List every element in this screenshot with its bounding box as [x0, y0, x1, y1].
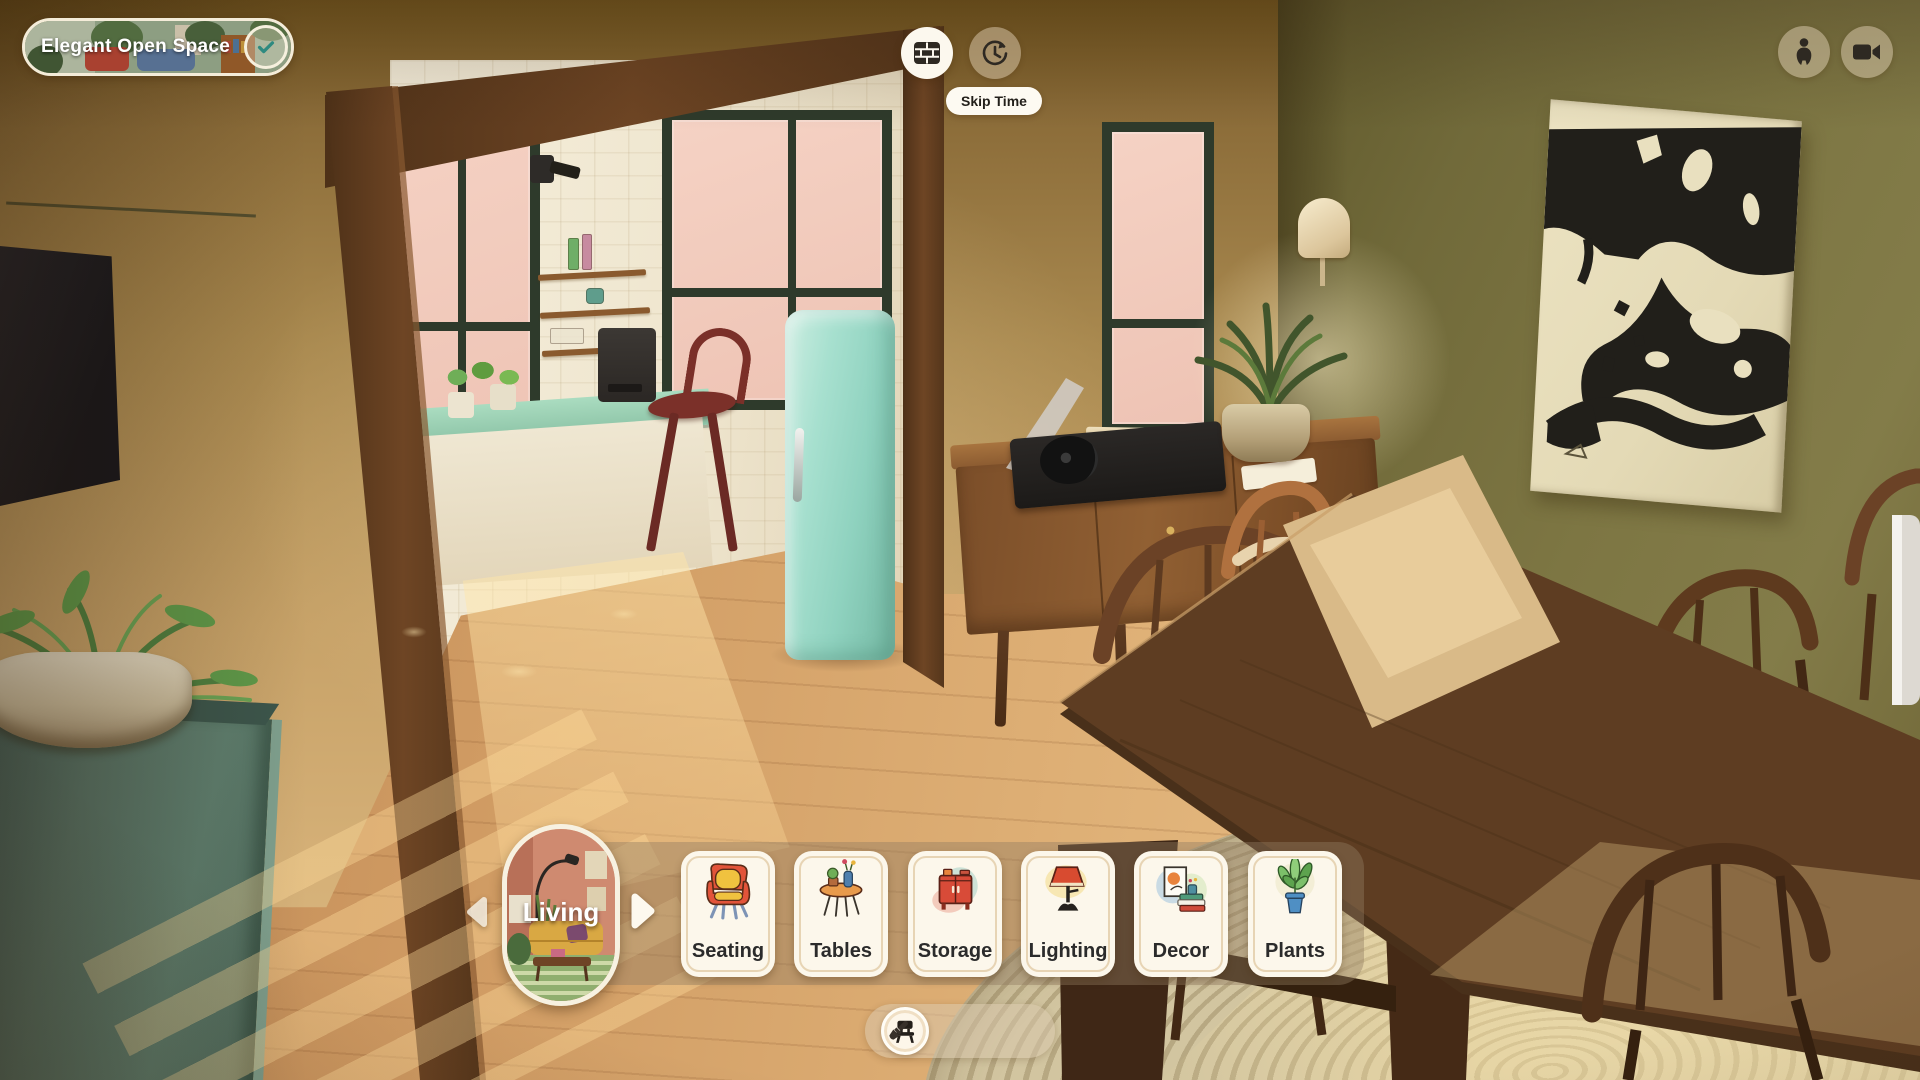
- room-selector-living[interactable]: Living: [502, 824, 620, 1006]
- skip-time-button[interactable]: [969, 27, 1021, 79]
- room-title: Elegant Open Space: [41, 21, 230, 73]
- category-label: Plants: [1248, 940, 1342, 963]
- check-icon: [255, 36, 277, 58]
- category-card-tables[interactable]: Tables: [794, 851, 888, 977]
- category-label: Lighting: [1021, 940, 1115, 963]
- category-card-seating[interactable]: Seating: [681, 851, 775, 977]
- game-screen: Elegant Open Space: [0, 0, 1920, 1080]
- frame-and-books-icon: [1152, 859, 1210, 921]
- wall-editor-button[interactable]: [901, 27, 953, 79]
- category-card-decor[interactable]: Decor: [1134, 851, 1228, 977]
- table-lamp-icon: [1039, 859, 1097, 921]
- category-card-storage[interactable]: Storage: [908, 851, 1002, 977]
- chevron-left-icon[interactable]: [466, 896, 488, 928]
- clock-forward-icon: [980, 38, 1010, 68]
- paint-mode-button[interactable]: [881, 1014, 915, 1048]
- camera-button[interactable]: [1841, 26, 1893, 78]
- category-card-lighting[interactable]: Lighting: [1021, 851, 1115, 977]
- mode-switcher: [865, 1004, 1055, 1058]
- category-label: Decor: [1134, 940, 1228, 963]
- floor-lamp: [1892, 515, 1920, 705]
- tv: [0, 246, 120, 506]
- paintbrush-icon: [884, 1017, 912, 1045]
- video-camera-icon: [1852, 41, 1882, 63]
- armchair-icon: [699, 859, 757, 921]
- round-table-icon: [812, 859, 870, 921]
- category-label: Seating: [681, 940, 775, 963]
- avatar-button[interactable]: [1778, 26, 1830, 78]
- potted-plant-icon: [1266, 859, 1324, 921]
- category-label: Tables: [794, 940, 888, 963]
- brick-wall-icon: [913, 41, 941, 65]
- room-title-pill[interactable]: Elegant Open Space: [22, 18, 294, 76]
- person-icon: [1791, 37, 1817, 67]
- category-card-plants[interactable]: Plants: [1248, 851, 1342, 977]
- room-selector-label: Living: [507, 897, 615, 928]
- sun-dapples: [330, 560, 750, 740]
- chevron-right-icon[interactable]: [630, 892, 656, 930]
- category-label: Storage: [908, 940, 1002, 963]
- saved-badge: [244, 25, 288, 69]
- cabinet-icon: [926, 859, 984, 921]
